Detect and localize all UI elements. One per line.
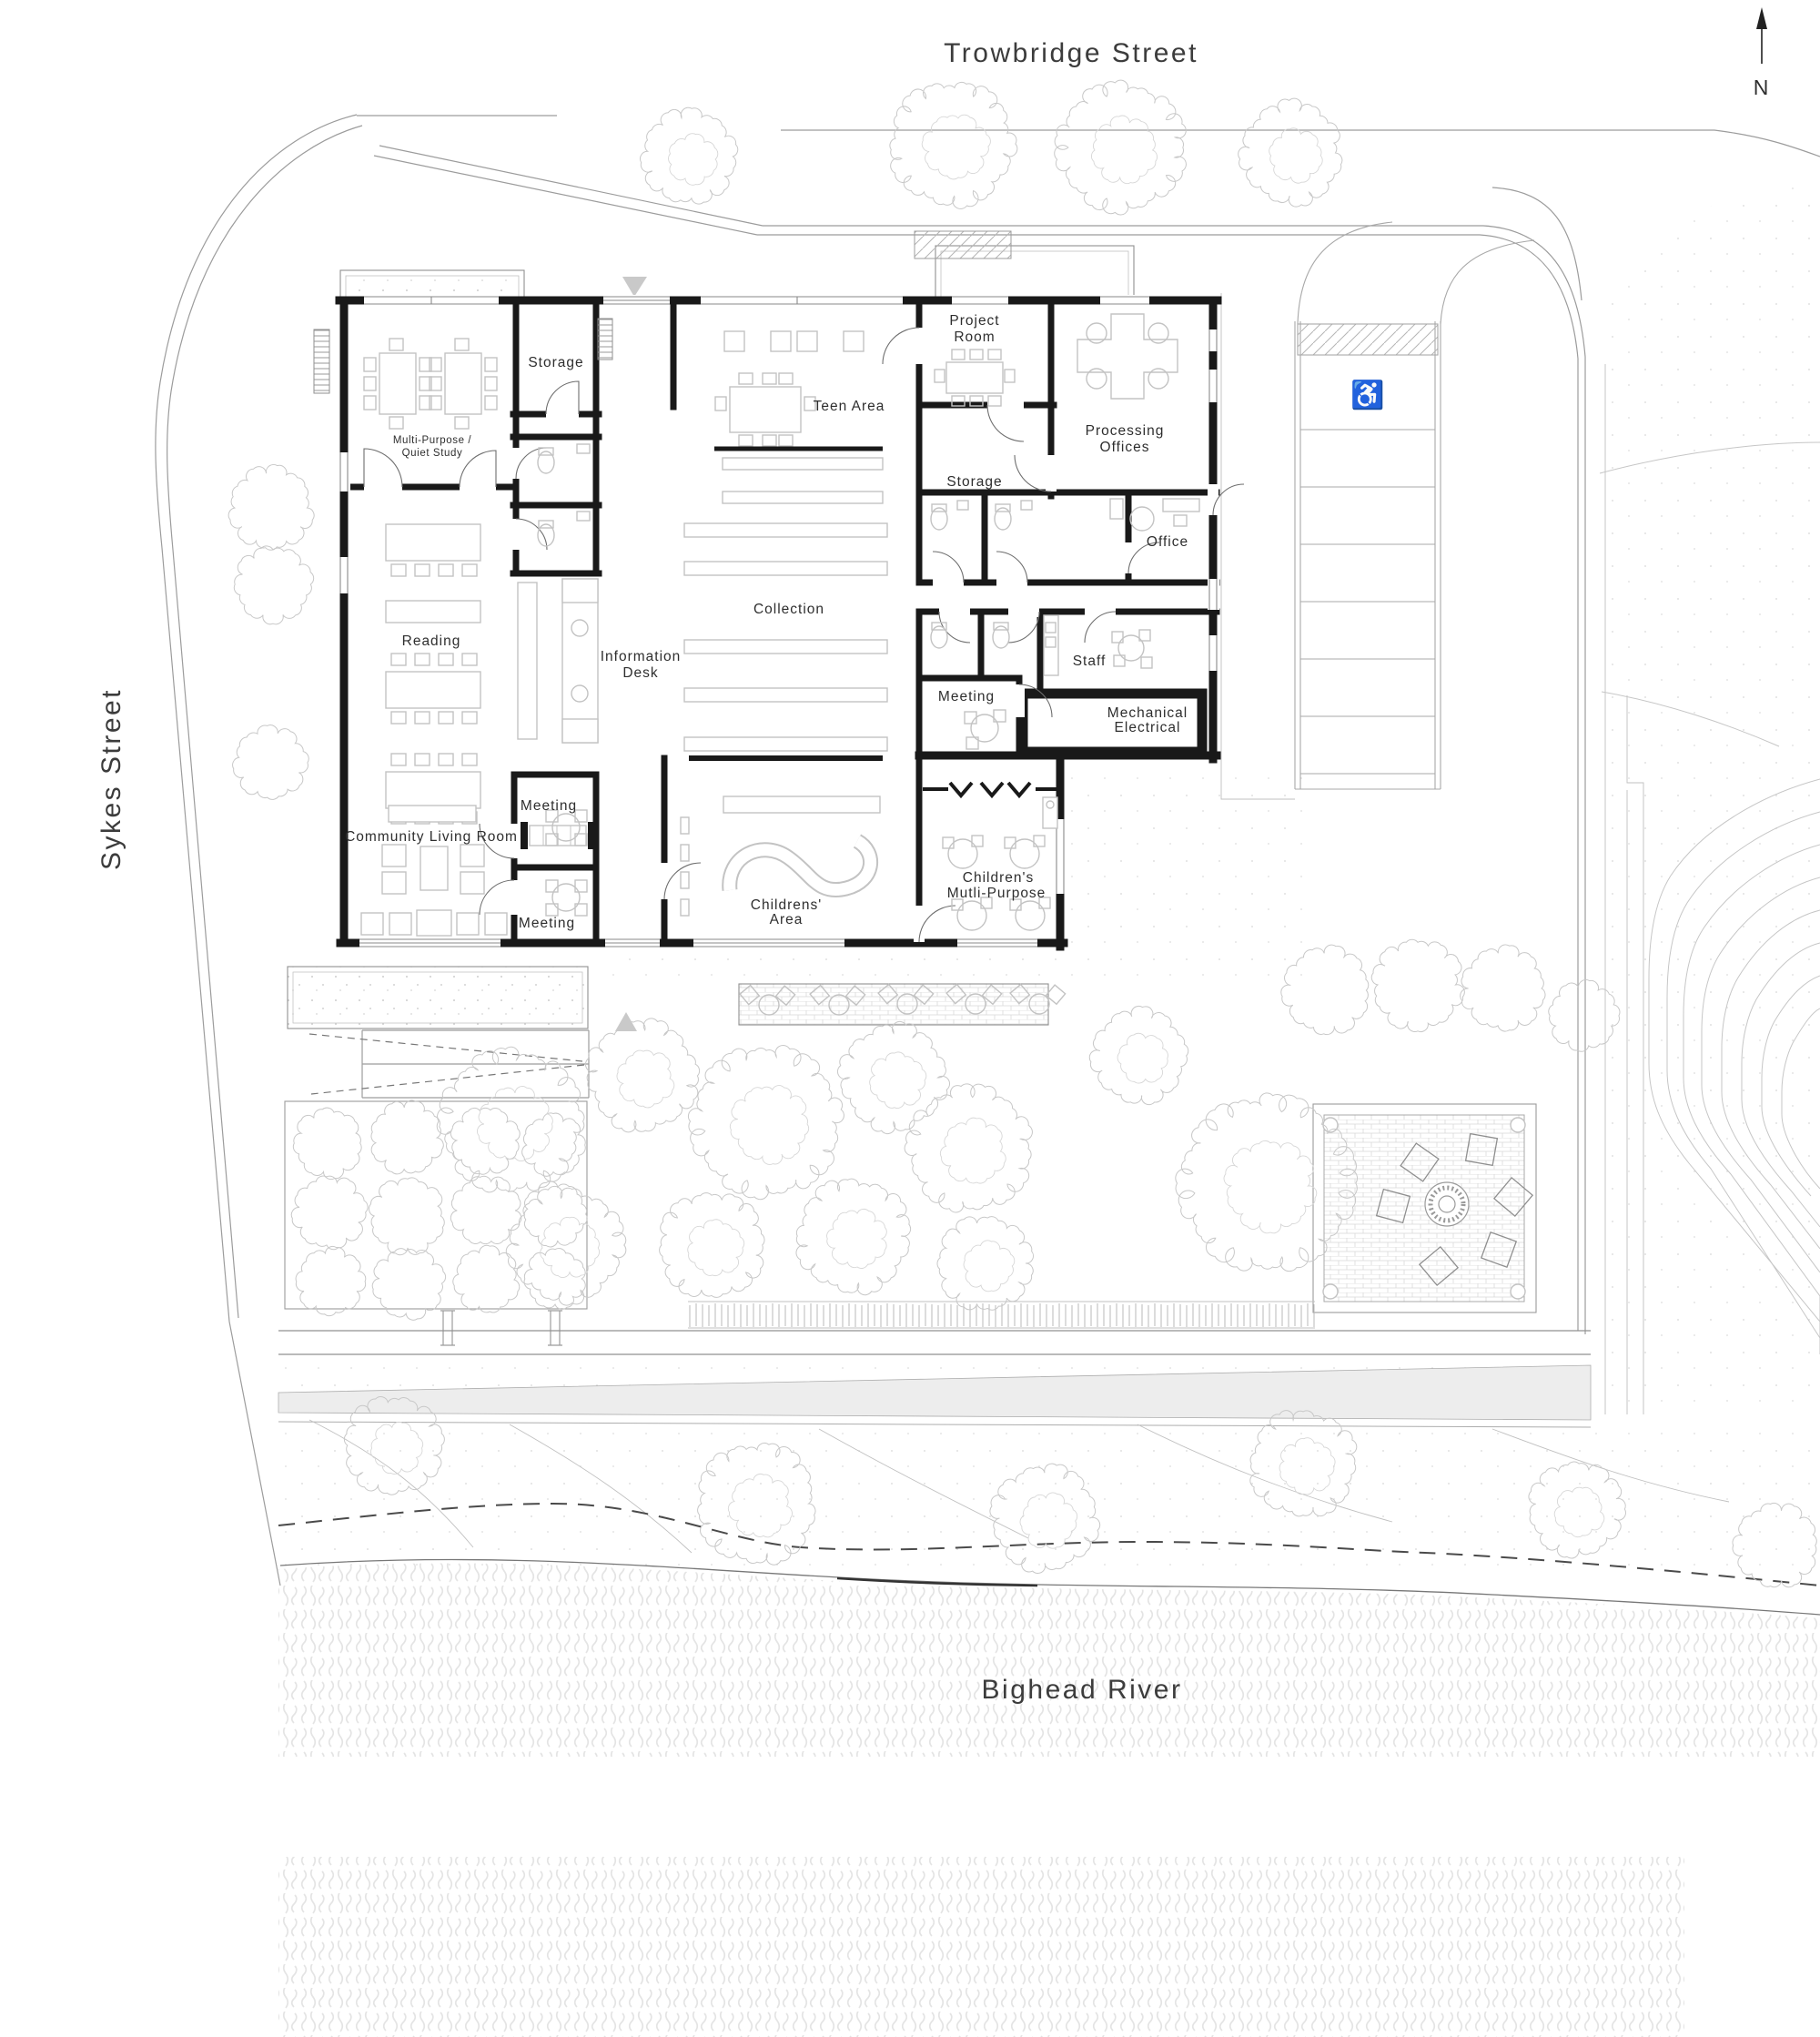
tree-canopy <box>1055 80 1187 215</box>
east-slope-stipple <box>1598 178 1820 1411</box>
tree-canopy <box>369 1178 444 1255</box>
river-label: Bighead River <box>982 1675 1183 1705</box>
firepit-patio <box>1313 1104 1536 1312</box>
room-label-staff: Staff <box>1073 654 1107 669</box>
street-label-west: Sykes Street <box>96 688 126 870</box>
tree-canopy <box>293 1108 361 1180</box>
tree-canopy <box>234 546 313 624</box>
parking-lot <box>1295 222 1534 789</box>
site-plan-page: ♿ <box>0 0 1820 2037</box>
room-label-childrens-area-2: Area <box>770 912 804 927</box>
north-arrow: N <box>1754 7 1769 99</box>
promenade-path <box>278 1331 1591 1354</box>
river-water-texture <box>278 1563 1820 1757</box>
tree-canopy <box>1461 945 1545 1031</box>
tree-canopy-inner <box>688 1220 744 1276</box>
room-label-electrical: Electrical <box>1115 720 1181 735</box>
tree-canopy <box>660 1193 764 1298</box>
tree-canopy-inner <box>1117 1033 1168 1083</box>
tree-canopy-inner <box>669 134 718 186</box>
tree-canopy <box>1239 98 1342 207</box>
tree-canopy <box>837 1021 949 1133</box>
tree-canopy <box>522 1113 586 1176</box>
tree-canopy-inner <box>617 1050 674 1108</box>
room-label-meeting-west-upper: Meeting <box>521 798 577 814</box>
room-label-meeting-east: Meeting <box>938 689 995 704</box>
garden-posts <box>440 1311 562 1345</box>
tree-canopy-inner <box>922 115 990 179</box>
tree-canopy-inner <box>827 1209 887 1268</box>
tree-canopy <box>585 1019 699 1132</box>
room-label-mechanical: Mechanical <box>1107 705 1188 721</box>
tree-canopy <box>641 107 738 204</box>
north-entrance-marker-icon <box>622 277 647 297</box>
tree-canopy-inner <box>730 1086 808 1165</box>
hedge-row <box>690 1303 1314 1327</box>
tree-canopy-inner <box>541 1217 600 1277</box>
room-label-collection: Collection <box>753 602 824 617</box>
room-label-community-living-room: Community Living Room <box>345 829 518 845</box>
tree-canopy-inner <box>1269 128 1323 183</box>
room-label-information-desk: Information <box>601 649 682 664</box>
tree-canopy <box>296 1246 366 1315</box>
tree-canopy <box>1371 939 1464 1031</box>
tree-canopy <box>371 1100 443 1174</box>
room-label-reading: Reading <box>402 633 461 649</box>
tree-canopy-inner <box>870 1052 926 1109</box>
tree-canopy-inner <box>964 1241 1015 1292</box>
tree-canopy-inner <box>940 1118 1006 1183</box>
crosswalk-hatch <box>1298 324 1438 355</box>
room-label-childrens-multi-2: Mutli-Purpose <box>947 886 1046 901</box>
tree-canopy <box>506 1186 626 1305</box>
room-label-processing-offices: Processing <box>1086 423 1165 439</box>
site-plan-drawing: ♿ <box>0 0 1820 2037</box>
north-arrow-icon <box>1756 7 1767 29</box>
north-label: N <box>1754 76 1769 99</box>
room-label-storage-central: Storage <box>946 474 1002 490</box>
exterior-stair <box>314 329 329 393</box>
tree-canopy <box>453 1245 520 1312</box>
tree-canopy <box>228 464 314 550</box>
tree-canopy-inner <box>1224 1140 1317 1232</box>
west-terrace <box>288 967 588 1029</box>
tree-canopy <box>1089 1006 1188 1104</box>
room-label-processing-offices-2: Offices <box>1100 440 1150 455</box>
tree-canopy <box>688 1045 844 1199</box>
tree-canopy <box>937 1217 1034 1311</box>
room-label-childrens-multi: Children's <box>963 870 1034 886</box>
tree-canopy <box>450 1108 520 1174</box>
room-label-project-room: Project <box>949 313 999 329</box>
tree-canopy <box>233 725 309 800</box>
room-label-multi-purpose-2: Quiet Study <box>402 448 463 459</box>
room-label-teen-area: Teen Area <box>814 399 885 414</box>
tree-canopy <box>890 82 1017 208</box>
room-label-information-desk-2: Desk <box>622 665 658 681</box>
room-label-meeting-west-lower: Meeting <box>519 916 575 931</box>
room-label-project-room-2: Room <box>954 329 995 345</box>
fire-pit <box>1425 1182 1469 1226</box>
tree-canopy <box>796 1179 911 1294</box>
room-label-childrens-area: Childrens' <box>751 897 822 913</box>
river-water-texture-lower <box>278 1857 1684 2037</box>
tree-canopy <box>905 1084 1032 1212</box>
street-label-north: Trowbridge Street <box>944 38 1198 68</box>
orchard-garden <box>285 1101 587 1309</box>
tree-canopy-inner <box>1091 116 1157 184</box>
room-label-multi-purpose: Multi-Purpose / <box>393 435 472 446</box>
room-label-office: Office <box>1147 534 1188 550</box>
room-label-storage-north: Storage <box>528 355 583 370</box>
accessible-parking-icon: ♿ <box>1350 379 1384 410</box>
tree-canopy <box>437 1047 584 1192</box>
tree-canopy <box>291 1176 368 1250</box>
